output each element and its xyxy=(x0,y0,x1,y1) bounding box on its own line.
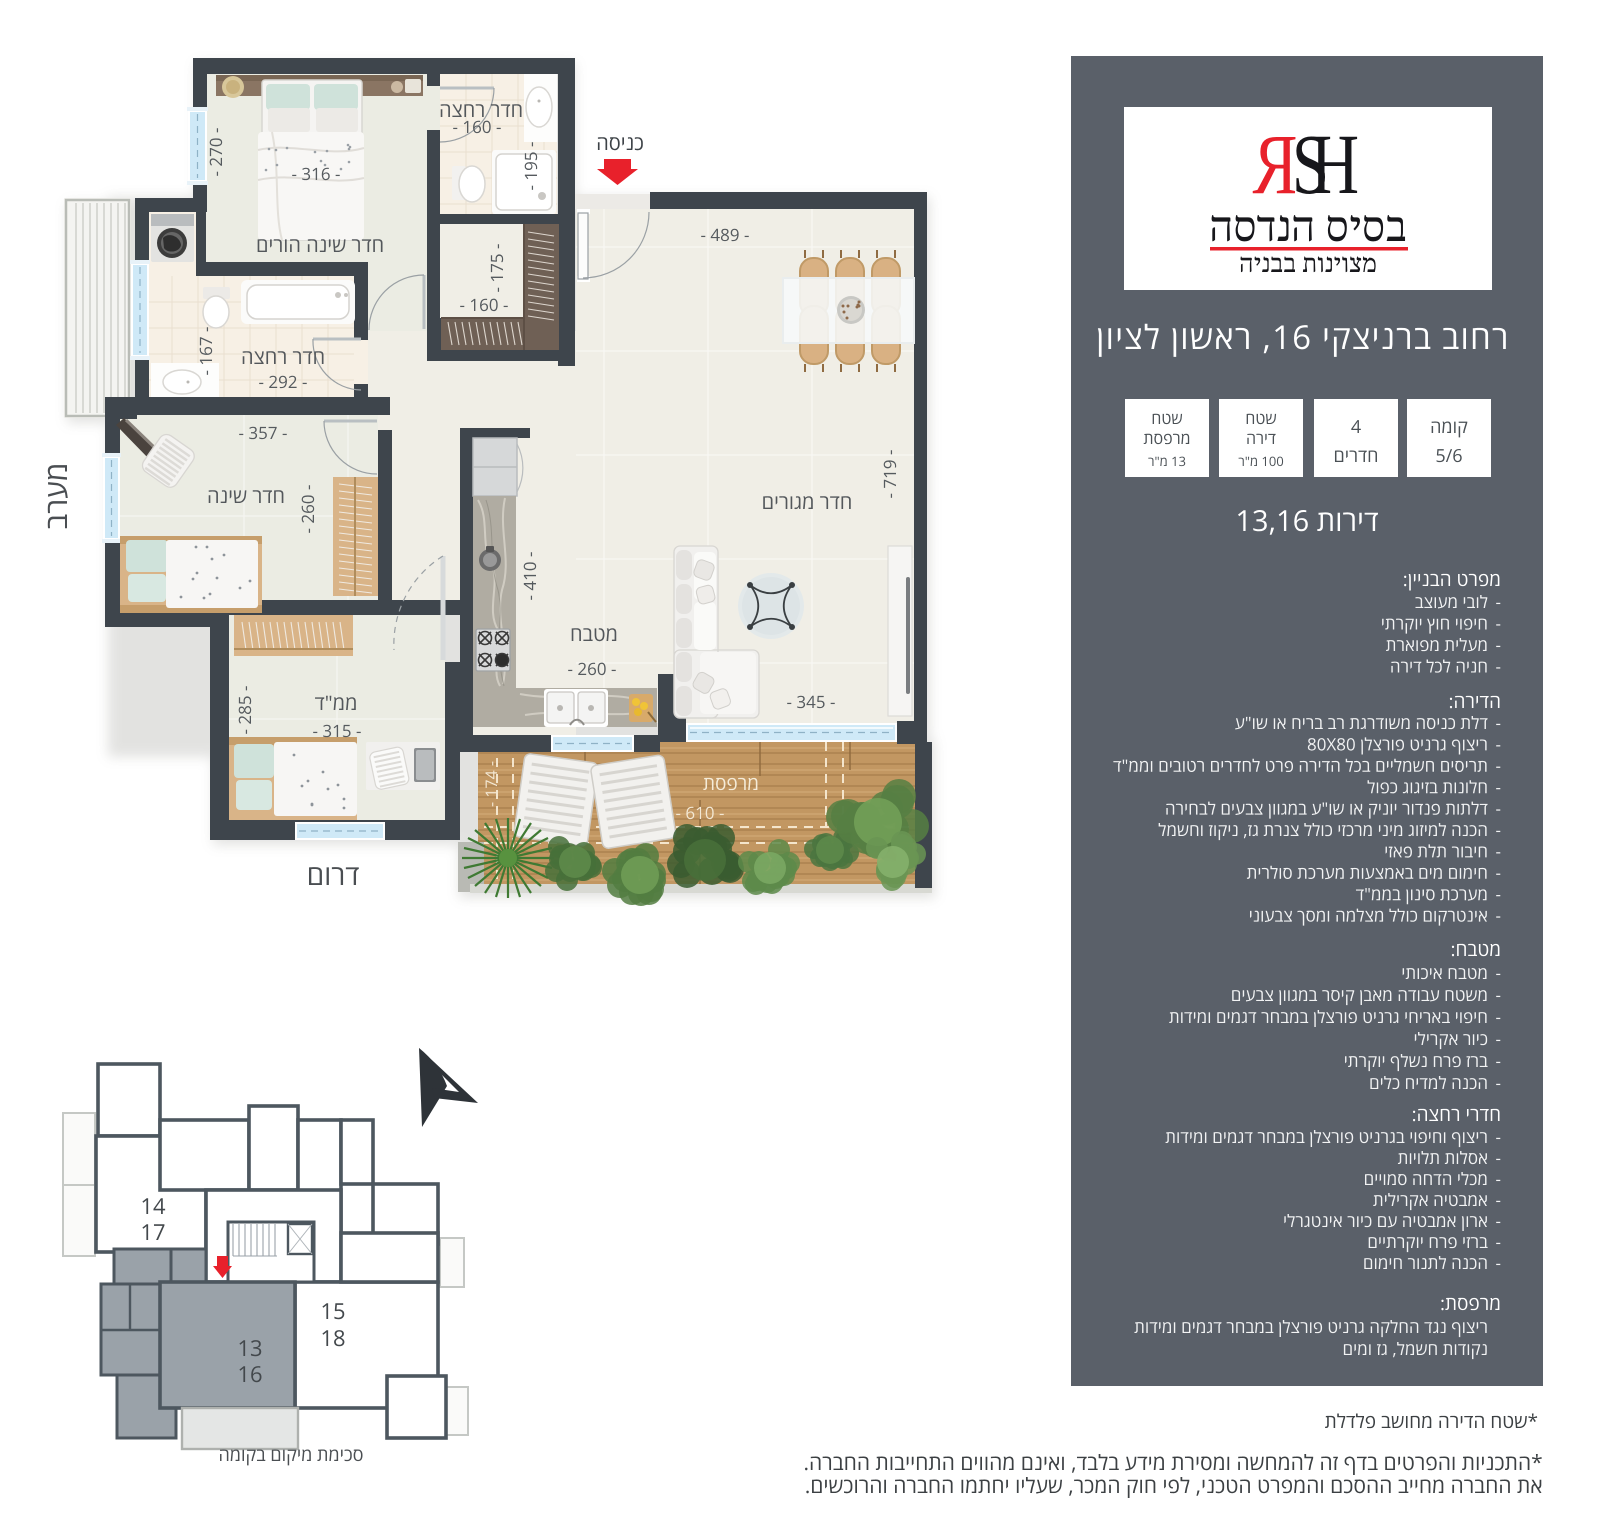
svg-text:H: H xyxy=(1311,116,1359,212)
svg-text:R: R xyxy=(1252,116,1297,212)
